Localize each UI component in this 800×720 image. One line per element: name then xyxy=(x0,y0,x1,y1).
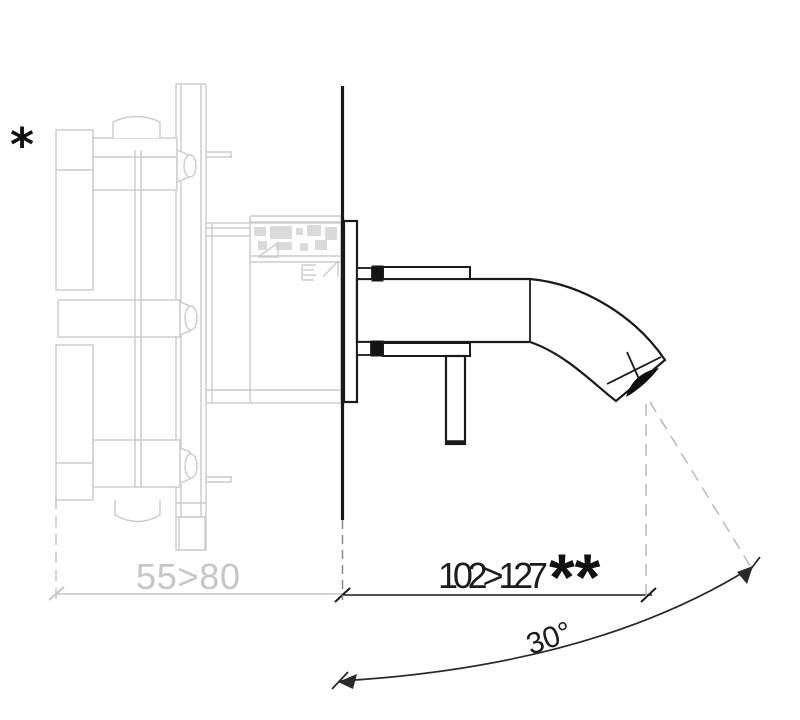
faucet-installation-drawing: 55>80 102>127 ** 30° xyxy=(0,0,800,720)
body-left-bar-upper xyxy=(56,130,93,290)
spout-angle-label: 30° xyxy=(522,615,576,661)
body-left-bar-lower xyxy=(56,345,93,500)
projection-range-label: 102>127 xyxy=(438,555,548,596)
spout-clamp-bottom xyxy=(371,341,383,356)
wall-note-asterisk: * xyxy=(10,118,34,172)
lever-handle xyxy=(446,356,465,444)
spout-neck-bottom xyxy=(357,342,371,355)
construction-lines xyxy=(646,402,752,604)
body-arm-bottom xyxy=(93,440,180,487)
spout-boss-top xyxy=(383,267,470,279)
spout-collar-bottom xyxy=(383,343,470,356)
tip-extension-diagonal xyxy=(650,402,752,569)
spout-body xyxy=(357,279,665,401)
concealed-valve-body xyxy=(56,84,341,550)
projection-note-asterisks: ** xyxy=(549,540,601,614)
body-arm-middle xyxy=(58,300,180,337)
wall-escutcheon-plate xyxy=(344,221,357,402)
spout-trim xyxy=(344,221,665,444)
drawing-svg: 55>80 102>127 ** 30° xyxy=(0,0,800,720)
body-cap-bottom xyxy=(115,500,160,522)
body-cap-top xyxy=(113,117,160,139)
spout-clamp-top xyxy=(372,266,383,281)
spout-neck-top xyxy=(357,268,372,279)
depth-range-label: 55>80 xyxy=(136,556,240,597)
